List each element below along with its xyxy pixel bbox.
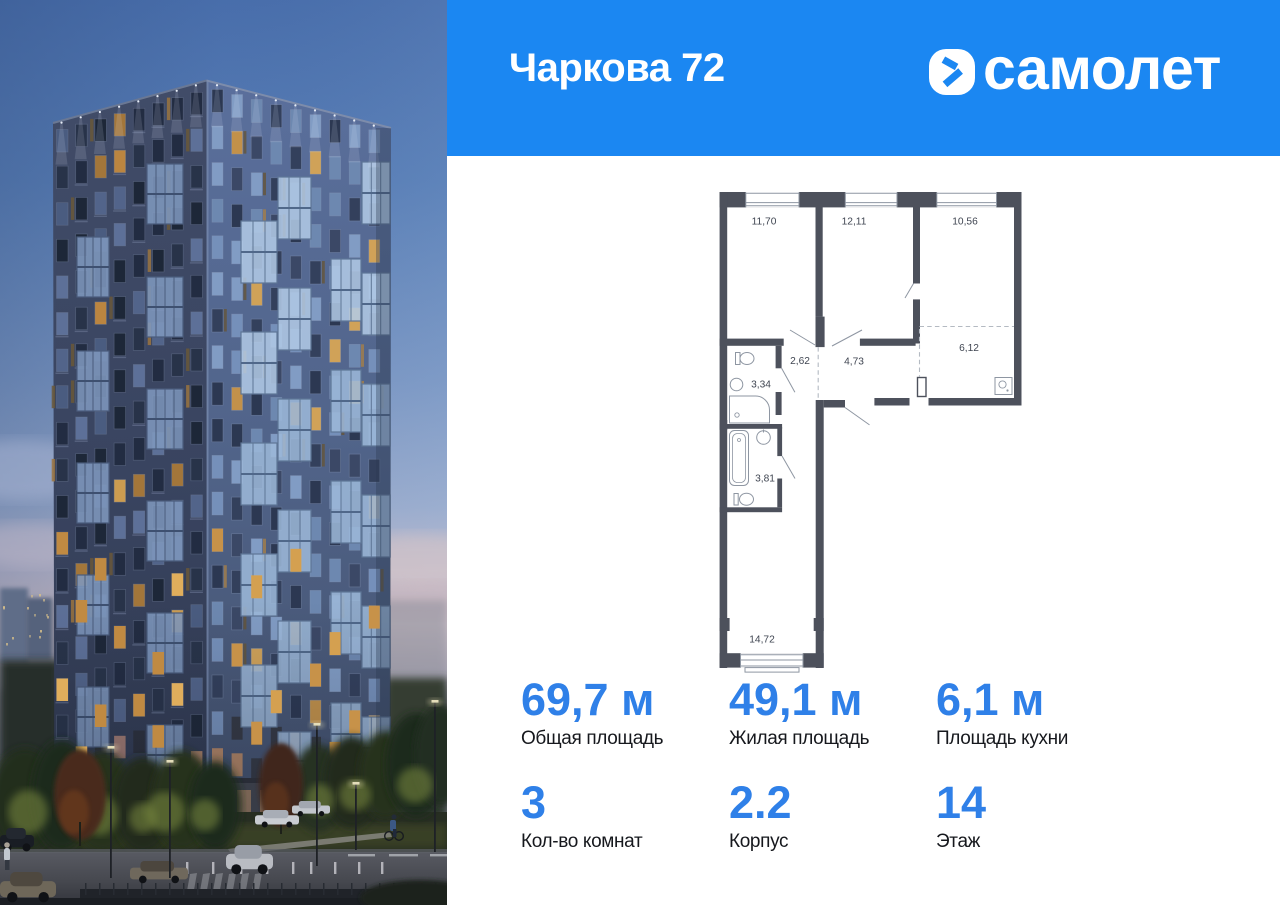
svg-text:4,73: 4,73 [844,357,864,368]
svg-text:12,11: 12,11 [842,217,867,228]
svg-text:3,81: 3,81 [755,474,775,485]
svg-text:3,34: 3,34 [751,380,771,391]
svg-text:10,56: 10,56 [952,217,978,228]
svg-text:2,62: 2,62 [790,356,810,367]
svg-text:14,72: 14,72 [749,635,775,646]
svg-text:6,12: 6,12 [959,343,979,354]
svg-text:11,70: 11,70 [752,217,777,228]
